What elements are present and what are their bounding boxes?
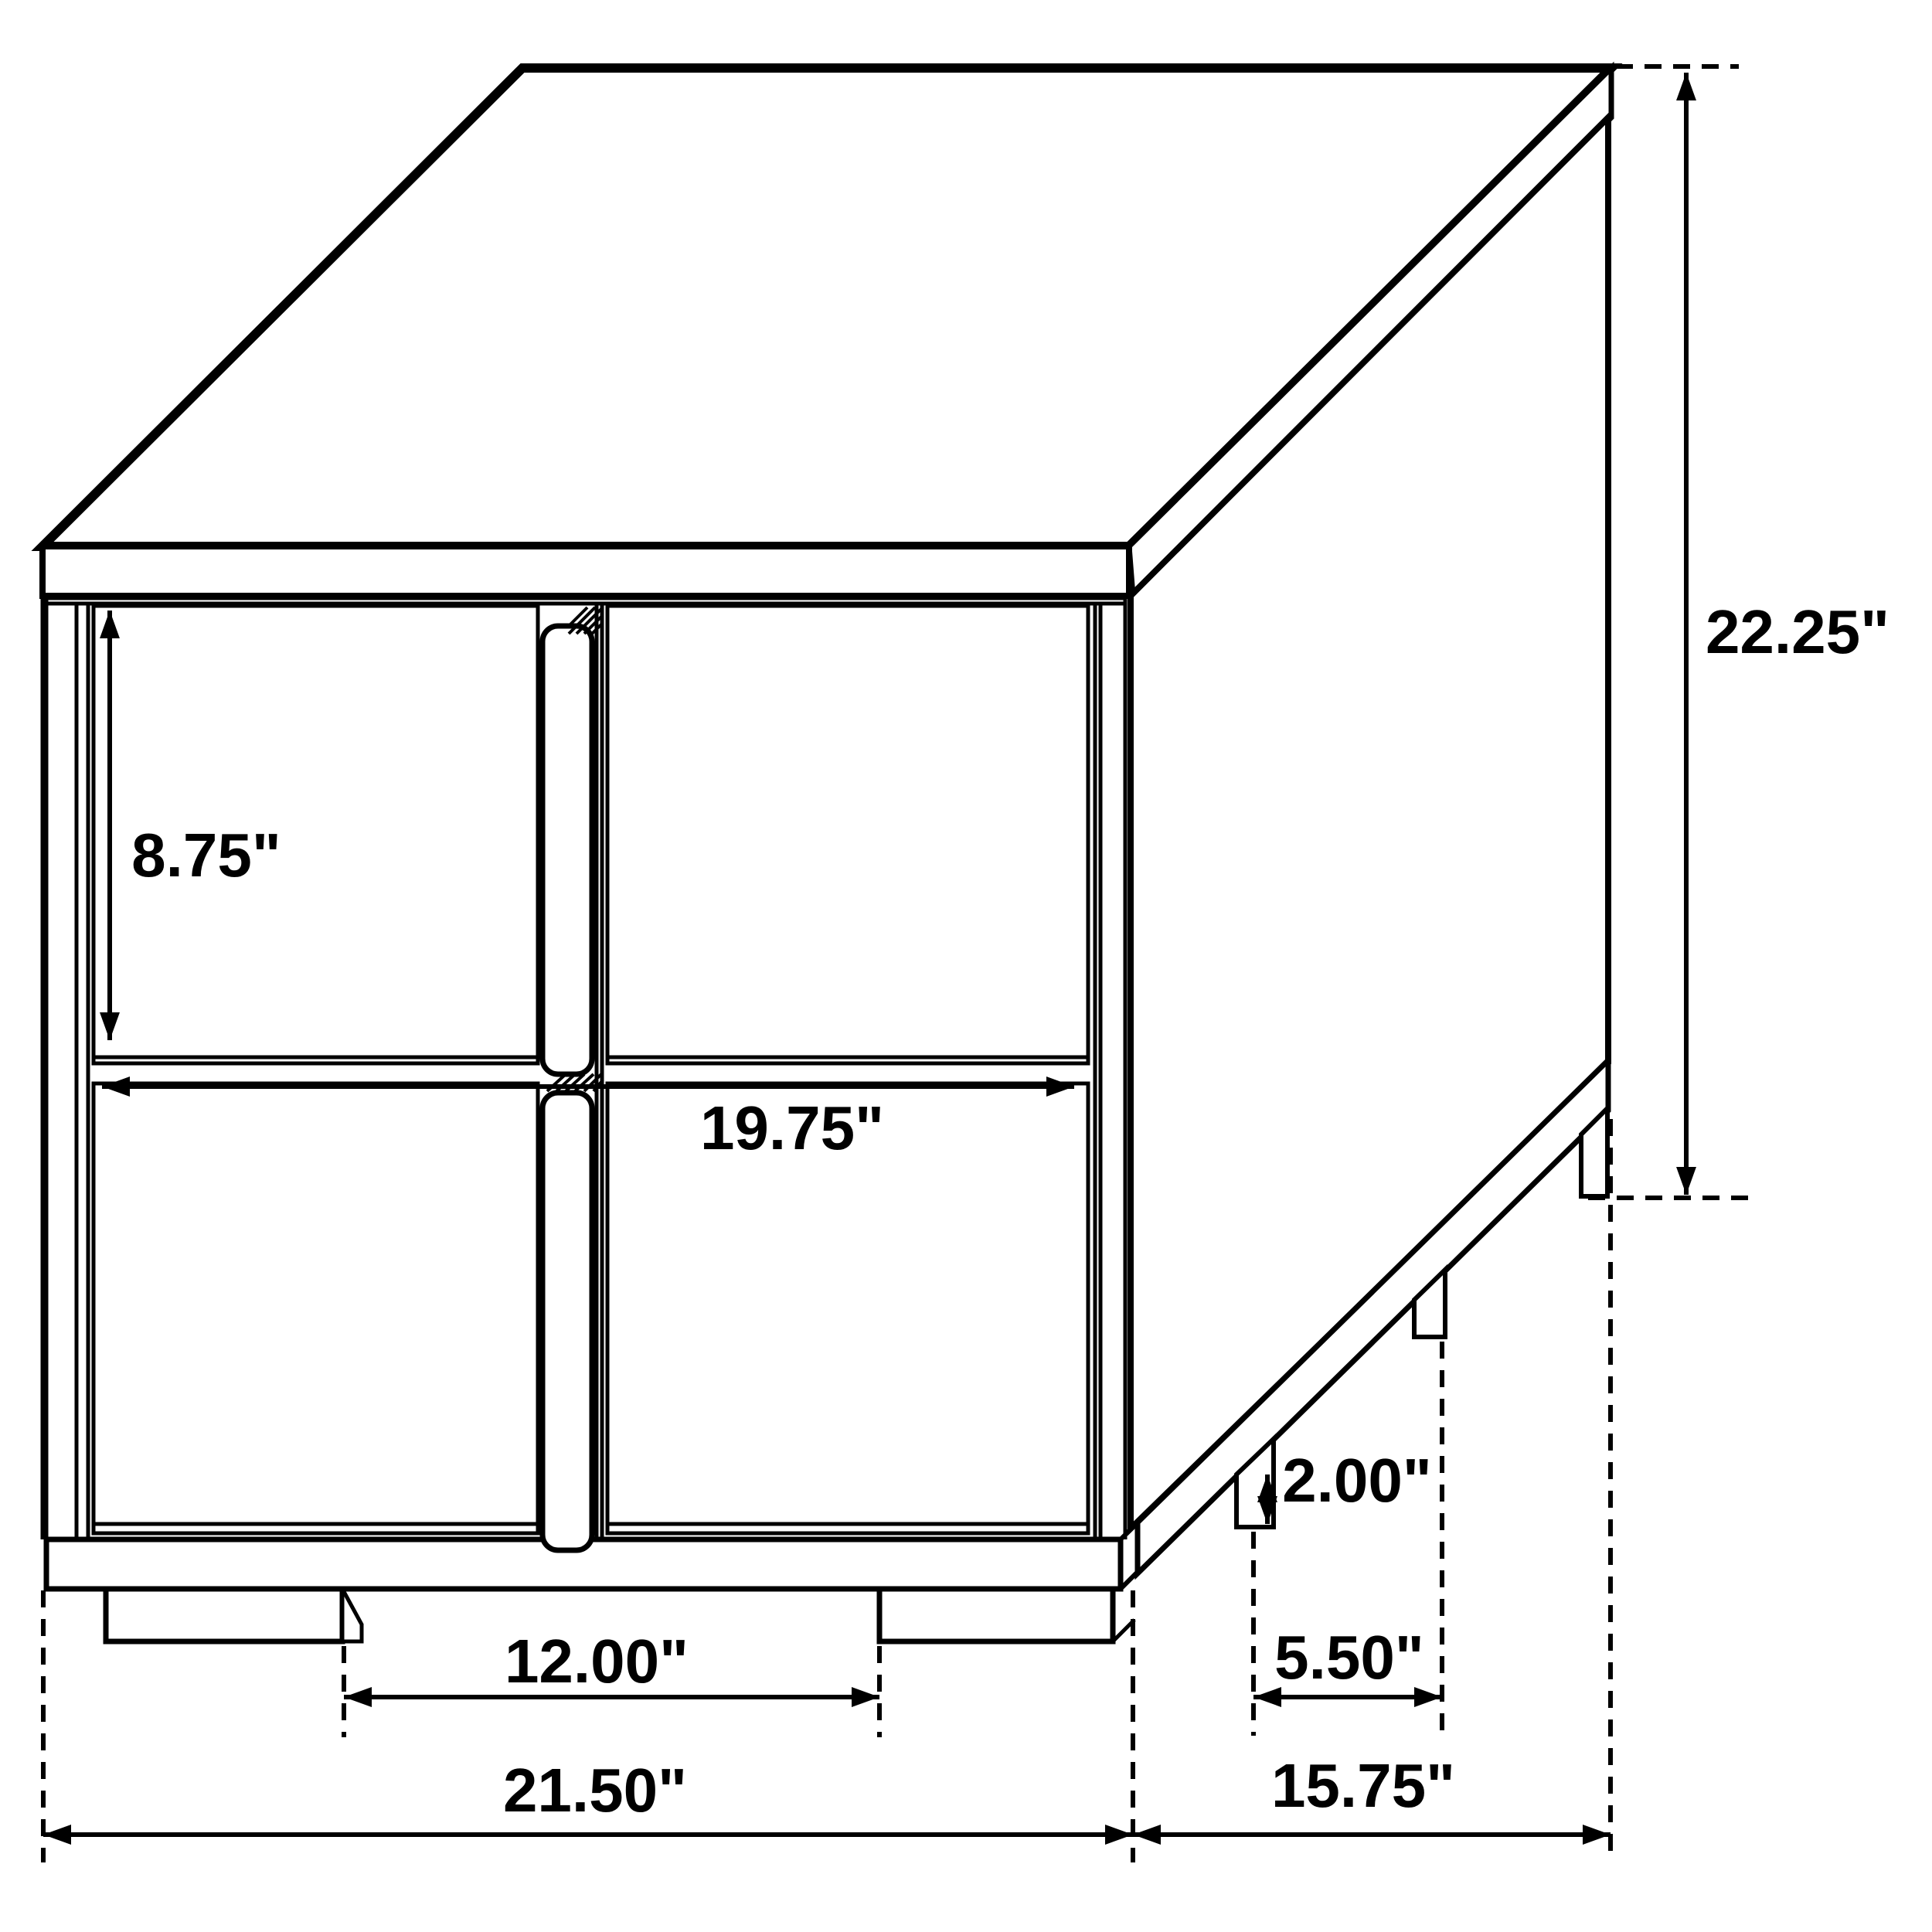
dim-height-label: 22.25" [1706,597,1889,666]
dim-drawer-height-label: 8.75" [131,821,281,889]
front-leg-right [879,1589,1113,1641]
top-slab-front-edge [43,546,1129,596]
drawer-front-top-right [607,606,1088,1063]
front-leg-left [106,1589,342,1641]
dim-leg-height-label: 2.00" [1282,1446,1432,1515]
diagram-canvas: 8.75" 19.75" 22.25" 2.00" 5.50" [0,0,1932,1932]
dim-side-leg-spacing-label: 5.50" [1274,1623,1424,1692]
dim-width-label: 21.50" [503,1756,687,1825]
dim-front-leg-spacing-label: 12.00" [505,1627,689,1696]
handle-top [543,626,592,1074]
dim-leg-height: 2.00" [1267,1446,1432,1524]
drawer-front-bottom-left [94,1083,538,1533]
dim-depth-label: 15.75" [1271,1751,1455,1820]
handle-bottom [543,1093,592,1550]
nightstand-dimension-diagram: 8.75" 19.75" 22.25" 2.00" 5.50" [0,0,1932,1932]
dim-drawer-width-label: 19.75" [700,1094,884,1162]
